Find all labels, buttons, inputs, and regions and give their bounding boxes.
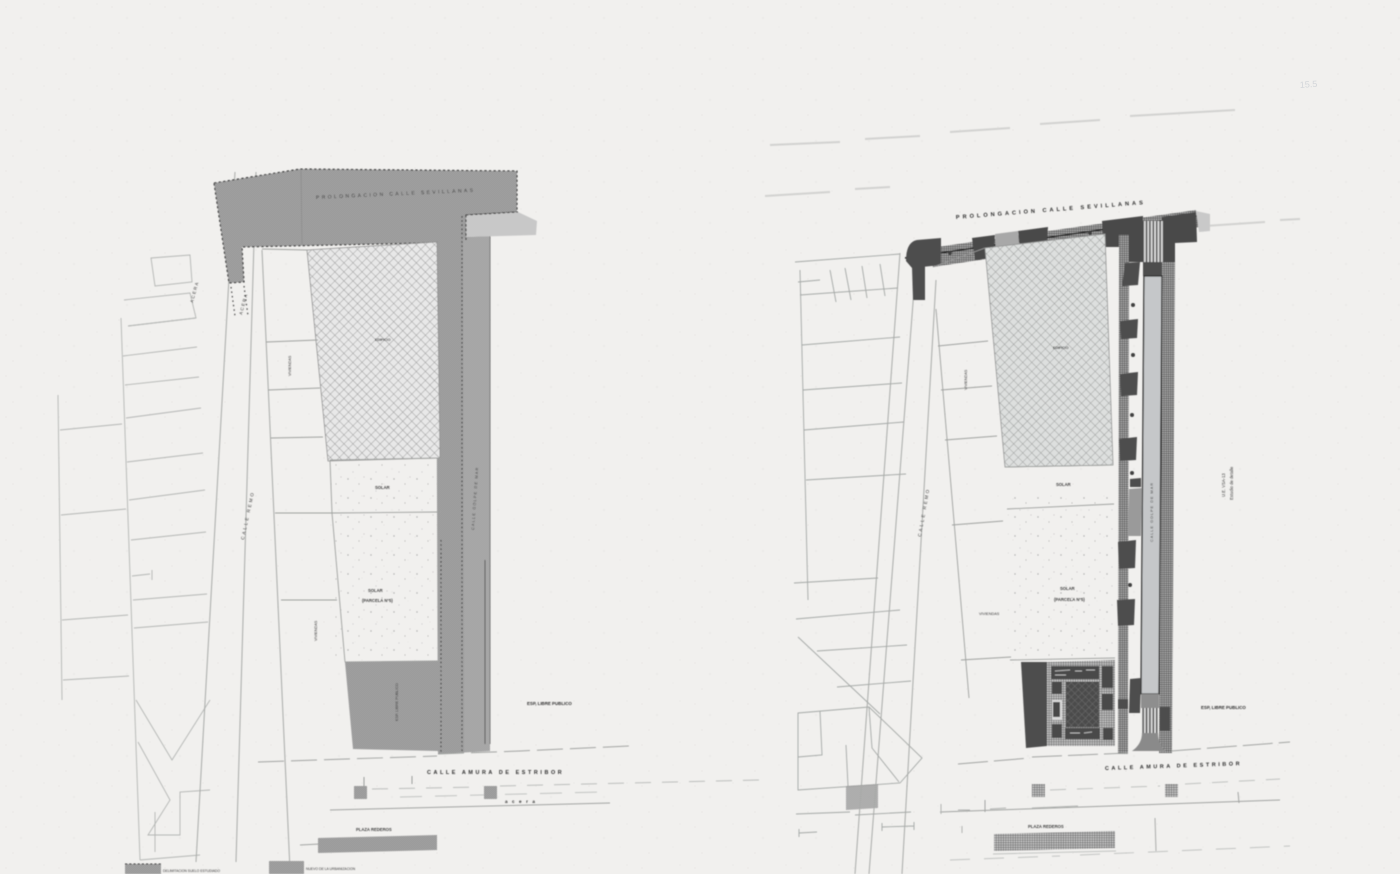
svg-text:(PARCELA N°5): (PARCELA N°5) — [362, 598, 393, 603]
svg-text:DELIMITACION SUELO ESTUDIADO: DELIMITACION SUELO ESTUDIADO — [163, 869, 220, 873]
svg-text:U.E. VSA-13: U.E. VSA-13 — [1221, 473, 1226, 497]
svg-text:SOLAR: SOLAR — [1060, 586, 1075, 591]
svg-text:ESP, LIBRE PUBLICO: ESP, LIBRE PUBLICO — [527, 701, 572, 706]
svg-text:EDIFICIO: EDIFICIO — [375, 338, 391, 342]
svg-text:15.5: 15.5 — [1299, 79, 1317, 90]
svg-text:CALLE GOLPE DE MAR: CALLE GOLPE DE MAR — [1150, 482, 1154, 542]
svg-text:NUEVO DE LA URBANIZACION: NUEVO DE LA URBANIZACION — [306, 867, 356, 871]
svg-text:PLAZA REDEROS: PLAZA REDEROS — [356, 827, 392, 832]
svg-text:ESP, LIBRE PUBLICO: ESP, LIBRE PUBLICO — [1201, 705, 1246, 710]
svg-text:SOLAR: SOLAR — [368, 588, 383, 593]
svg-text:SOLAR: SOLAR — [1056, 482, 1071, 487]
svg-text:Estudio de detalle: Estudio de detalle — [1229, 466, 1234, 500]
svg-text:CALLE AMURA DE ESTRIBOR: CALLE AMURA DE ESTRIBOR — [427, 770, 564, 776]
svg-text:(PARCELA N°5): (PARCELA N°5) — [1054, 597, 1085, 602]
svg-text:EDIFICIO: EDIFICIO — [1053, 346, 1069, 350]
svg-text:VIVIENDAS: VIVIENDAS — [979, 612, 1000, 616]
svg-text:PLAZA REDEROS: PLAZA REDEROS — [1028, 824, 1064, 829]
svg-text:VIVIENDAS: VIVIENDAS — [314, 620, 318, 641]
svg-text:SOLAR: SOLAR — [375, 485, 390, 490]
svg-text:VIVIENDAS: VIVIENDAS — [288, 355, 292, 376]
svg-text:a c e r a: a c e r a — [505, 799, 537, 804]
svg-text:VIVIENDAS: VIVIENDAS — [964, 369, 968, 390]
svg-text:ESP. LIBRE PUBLICO: ESP. LIBRE PUBLICO — [395, 683, 399, 721]
